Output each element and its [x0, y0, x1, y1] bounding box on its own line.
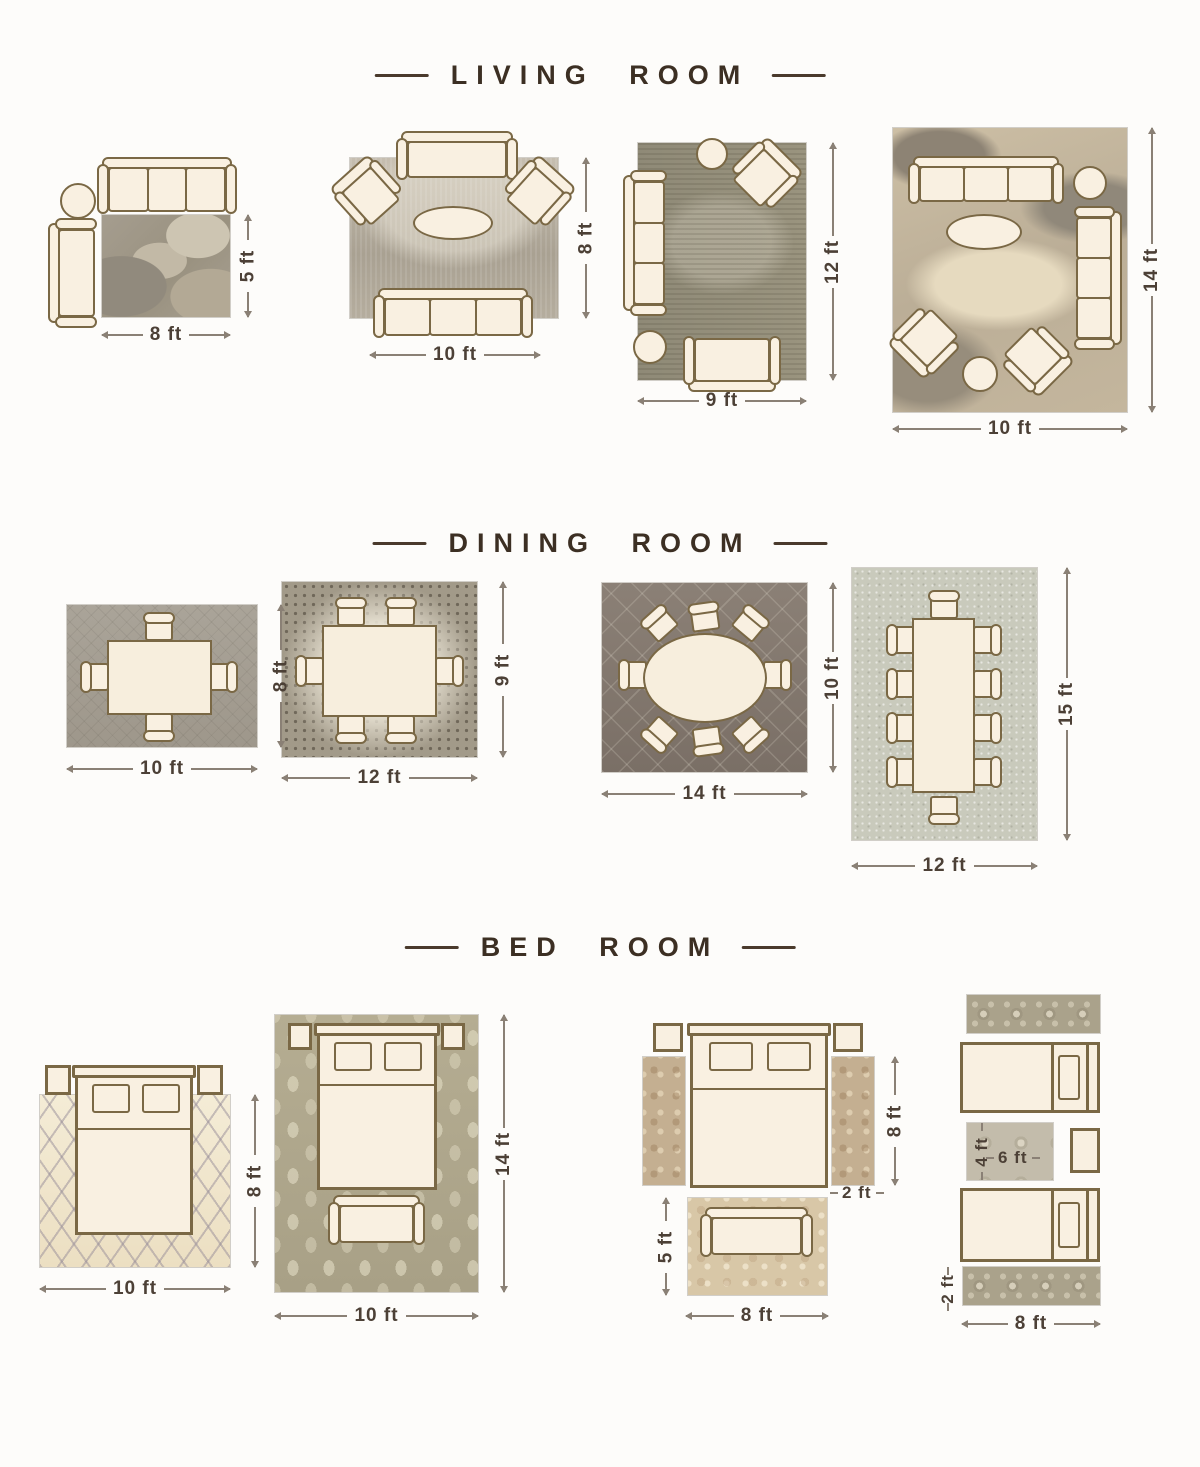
mid-rug-width-dimension: 6 ft	[986, 1148, 1050, 1168]
dining-chair	[209, 663, 233, 691]
runner-height-dimension: 2 ft	[936, 1267, 960, 1307]
height-dimension: 15 ft	[1055, 568, 1079, 840]
dim-label: 12 ft	[922, 855, 966, 877]
side-table	[962, 356, 998, 392]
nightstand	[288, 1023, 312, 1050]
dining-room-title-text: DINING ROOM	[449, 528, 752, 559]
dim-label: 14 ft	[1141, 248, 1163, 292]
bed	[317, 1023, 437, 1190]
dim-label: 5 ft	[655, 1230, 677, 1263]
nightstand	[653, 1023, 683, 1052]
living-room-title-text: LIVING ROOM	[451, 60, 750, 91]
living-room-layout-4: 14 ft 10 ft	[888, 118, 1200, 458]
bed-room-title: BED ROOM	[405, 932, 796, 963]
dining-chair	[435, 657, 459, 685]
height-dimension: 10 ft	[821, 583, 845, 772]
sofa	[1074, 206, 1122, 350]
height-dimension: 9 ft	[491, 582, 515, 757]
dim-label: 8 ft	[575, 222, 597, 255]
dim-label: 14 ft	[682, 783, 726, 805]
dining-chair	[973, 758, 997, 786]
coffee-table	[946, 214, 1022, 250]
sofa	[373, 288, 533, 338]
side-table	[696, 138, 728, 170]
height-dimension: 8 ft	[574, 158, 598, 318]
dining-table	[322, 625, 437, 717]
dining-chair	[145, 713, 173, 737]
height-dimension: 14 ft	[1140, 128, 1164, 412]
dining-chair	[300, 657, 324, 685]
dining-chair	[973, 670, 997, 698]
sofa	[396, 131, 518, 180]
title-dash-left	[373, 542, 427, 545]
dining-chair	[387, 602, 415, 626]
foot-rug-height-dimension: 5 ft	[654, 1198, 678, 1295]
height-dimension: 8 ft	[883, 1057, 907, 1185]
dining-room-layout-4: 15 ft 12 ft	[845, 560, 1100, 885]
dining-room-layout-2: 9 ft 12 ft	[275, 575, 520, 805]
width-dimension: 10 ft	[370, 344, 540, 366]
dim-label: 8 ft	[150, 324, 183, 346]
sofa	[623, 170, 667, 316]
nightstand	[833, 1023, 863, 1052]
dim-label: 10 ft	[822, 655, 844, 699]
dining-room-layout-3: 10 ft 14 ft	[595, 575, 850, 815]
dim-label: 8 ft	[270, 660, 292, 693]
dining-chair	[973, 714, 997, 742]
runner-width-dimension: 2 ft	[830, 1183, 878, 1203]
bed	[690, 1023, 828, 1188]
runner-rug	[967, 995, 1100, 1033]
sofa	[908, 156, 1064, 204]
width-dimension: 12 ft	[852, 855, 1037, 877]
chaise	[48, 218, 97, 328]
side-table	[1073, 166, 1107, 200]
bed-room-layout-2: 14 ft 10 ft	[270, 1008, 520, 1343]
dim-label: 9 ft	[706, 390, 739, 412]
dining-chair	[689, 605, 720, 633]
runner-rug	[963, 1267, 1100, 1305]
dim-label: 12 ft	[822, 239, 844, 283]
dining-chair	[337, 602, 365, 626]
bed-room-layout-3: 8 ft 2 ft 5 ft 8 ft	[640, 1015, 915, 1337]
width-dimension: 8 ft	[962, 1313, 1100, 1335]
bed-room-layout-1: 8 ft 10 ft	[35, 1040, 303, 1308]
dim-label: 15 ft	[1056, 682, 1078, 726]
nightstand	[1070, 1128, 1100, 1173]
width-dimension: 8 ft	[102, 324, 230, 346]
loveseat	[683, 336, 781, 392]
dining-chair	[145, 617, 173, 641]
dining-chair	[387, 715, 415, 739]
runner-rug	[643, 1057, 685, 1185]
dim-label: 2 ft	[842, 1183, 872, 1203]
title-dash-right	[771, 74, 825, 77]
height-dimension: 8 ft	[269, 605, 293, 747]
dining-chair	[930, 595, 958, 619]
width-dimension: 8 ft	[686, 1305, 828, 1327]
dim-label: 6 ft	[998, 1148, 1028, 1168]
nightstand	[197, 1065, 223, 1095]
sofa	[97, 157, 237, 214]
dim-label: 10 ft	[113, 1278, 157, 1300]
rug-size-guide: LIVING ROOM 5 ft 8 ft	[0, 0, 1200, 1467]
twin-bed	[960, 1188, 1100, 1262]
height-dimension: 14 ft	[492, 1015, 516, 1292]
title-dash-left	[375, 74, 429, 77]
dim-label: 10 ft	[140, 758, 184, 780]
living-room-title: LIVING ROOM	[375, 60, 826, 91]
living-room-layout-1: 5 ft 8 ft	[40, 148, 300, 353]
nightstand	[441, 1023, 465, 1050]
title-dash-left	[405, 946, 459, 949]
dining-chair	[973, 626, 997, 654]
width-dimension: 10 ft	[67, 758, 257, 780]
bed-room-layout-4: 4 ft 6 ft 2 ft 8 ft	[930, 990, 1185, 1340]
dining-chair	[85, 663, 109, 691]
dim-label: 8 ft	[244, 1165, 266, 1198]
dim-label: 5 ft	[237, 250, 259, 283]
dim-label: 14 ft	[493, 1131, 515, 1175]
bed	[75, 1065, 193, 1235]
runner-rug	[832, 1057, 874, 1185]
height-dimension: 12 ft	[821, 143, 845, 380]
dim-label: 2 ft	[938, 1274, 958, 1304]
dining-room-layout-1: 8 ft 10 ft	[55, 595, 305, 795]
bench	[328, 1195, 425, 1245]
dim-label: 8 ft	[741, 1305, 774, 1327]
side-table	[60, 183, 96, 219]
dim-label: 10 ft	[988, 418, 1032, 440]
living-room-layout-3: 12 ft 9 ft	[623, 138, 875, 430]
nightstand	[45, 1065, 71, 1095]
dim-label: 8 ft	[1015, 1313, 1048, 1335]
width-dimension: 14 ft	[602, 783, 807, 805]
twin-bed	[960, 1042, 1100, 1113]
dining-room-title: DINING ROOM	[373, 528, 828, 559]
dining-table	[912, 618, 975, 793]
width-dimension: 10 ft	[893, 418, 1127, 440]
bench	[700, 1207, 813, 1257]
dining-chair	[691, 725, 722, 753]
dim-label: 12 ft	[357, 767, 401, 789]
dining-chair	[930, 796, 958, 820]
dim-label: 10 ft	[354, 1305, 398, 1327]
height-dimension: 5 ft	[236, 215, 260, 317]
dining-chair	[337, 715, 365, 739]
coffee-table	[413, 206, 493, 240]
width-dimension: 12 ft	[282, 767, 477, 789]
living-room-layout-2: 8 ft 10 ft	[330, 126, 620, 381]
dim-label: 8 ft	[884, 1105, 906, 1138]
side-table	[633, 330, 667, 364]
oval-dining-table	[643, 633, 767, 723]
area-rug	[102, 215, 230, 317]
width-dimension: 9 ft	[638, 390, 806, 412]
dining-table	[107, 640, 212, 715]
dim-label: 10 ft	[433, 344, 477, 366]
bed-room-title-text: BED ROOM	[481, 932, 720, 963]
height-dimension: 8 ft	[243, 1095, 267, 1267]
width-dimension: 10 ft	[40, 1278, 230, 1300]
width-dimension: 10 ft	[275, 1305, 478, 1327]
title-dash-right	[741, 946, 795, 949]
title-dash-right	[774, 542, 828, 545]
dim-label: 9 ft	[492, 653, 514, 686]
